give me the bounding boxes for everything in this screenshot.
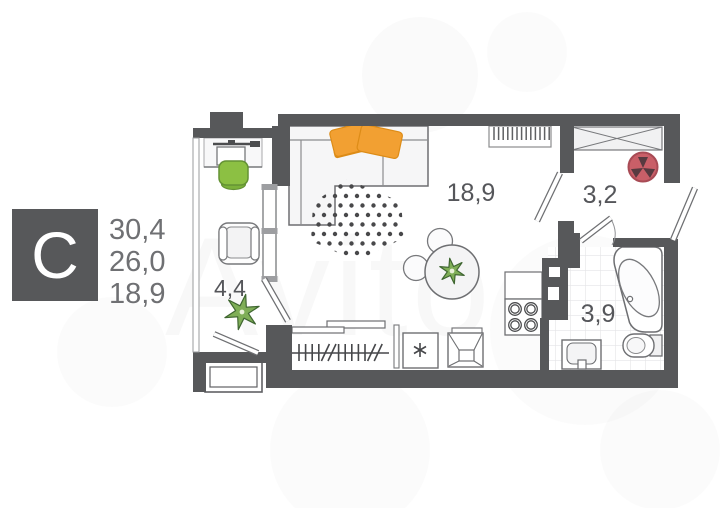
floorplan-image: Avito С 30,4 26,0 18,9 (0, 0, 720, 508)
window (262, 184, 278, 282)
armchair (219, 223, 259, 264)
counter (505, 272, 542, 299)
room-label-living: 18,9 (447, 179, 496, 207)
floorplan-svg: Avito С 30,4 26,0 18,9 (0, 0, 720, 508)
room-label-hall: 3,2 (583, 181, 618, 209)
room-label-bathroom: 3,9 (581, 300, 616, 328)
washbasin (562, 340, 601, 369)
ventilation-icon (629, 153, 658, 182)
counter-panel (394, 325, 399, 368)
room-label-balcony: 4,4 (214, 275, 246, 301)
kitchen-sink (448, 328, 483, 367)
drain-icon (627, 296, 632, 301)
toilet (623, 334, 662, 357)
office-chair (219, 161, 248, 190)
fridge (403, 333, 438, 368)
stove (505, 299, 542, 335)
legend-area-room: 18,9 (109, 278, 165, 310)
radiator (489, 126, 551, 147)
balcony-glazing (193, 138, 199, 352)
legend-area-total: 30,4 (109, 214, 165, 246)
legend: С 30,4 26,0 18,9 (12, 209, 165, 310)
studio-letter: С (31, 218, 79, 292)
wardrobe (572, 127, 662, 150)
legend-area-living: 26,0 (109, 246, 165, 278)
